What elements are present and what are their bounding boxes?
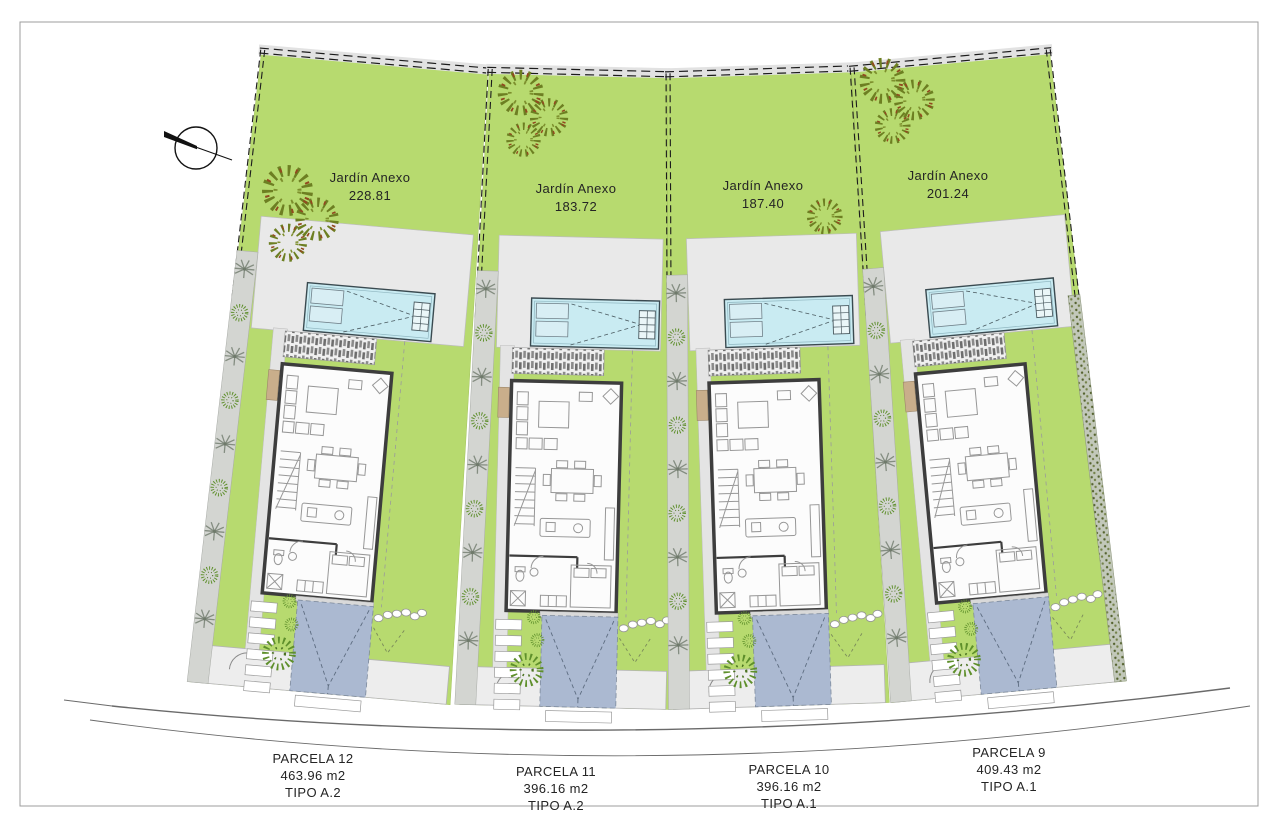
garden-label-9: Jardín Anexo — [908, 168, 989, 183]
garden-label-12: Jardín Anexo — [330, 170, 411, 185]
parcel-12-tipo: TIPO A.2 — [285, 785, 341, 800]
parcel-10-name: PARCELA 10 — [748, 762, 829, 777]
parcel-11-tipo: TIPO A.2 — [528, 798, 584, 813]
parcel-10-area: 396.16 m2 — [756, 779, 821, 794]
parcel-12-name: PARCELA 12 — [272, 751, 353, 766]
north-arrow-icon — [164, 127, 232, 169]
parcel-12-area: 463.96 m2 — [280, 768, 345, 783]
garden-area-10: 187.40 — [742, 196, 784, 211]
garden-area-12: 228.81 — [349, 188, 391, 203]
parcel-9-name: PARCELA 9 — [972, 745, 1045, 760]
parcel-11-name: PARCELA 11 — [516, 764, 596, 779]
road-edge-lower — [90, 706, 1250, 756]
garden-label-10: Jardín Anexo — [723, 178, 804, 193]
garden-label-11: Jardín Anexo — [536, 181, 617, 196]
garden-area-11: 183.72 — [555, 199, 597, 214]
parcel-12 — [186, 43, 506, 720]
parcel-10 — [648, 62, 890, 725]
parcel-11 — [454, 63, 685, 724]
parcel-9-area: 409.43 m2 — [976, 762, 1041, 777]
parcel-10-tipo: TIPO A.1 — [761, 796, 817, 811]
parcel-11-area: 396.16 m2 — [523, 781, 588, 796]
garden-area-9: 201.24 — [927, 186, 969, 201]
parcel-9-tipo: TIPO A.1 — [981, 779, 1037, 794]
site-plan-svg: Jardín Anexo 228.81 Jardín Anexo 183.72 … — [0, 0, 1280, 828]
